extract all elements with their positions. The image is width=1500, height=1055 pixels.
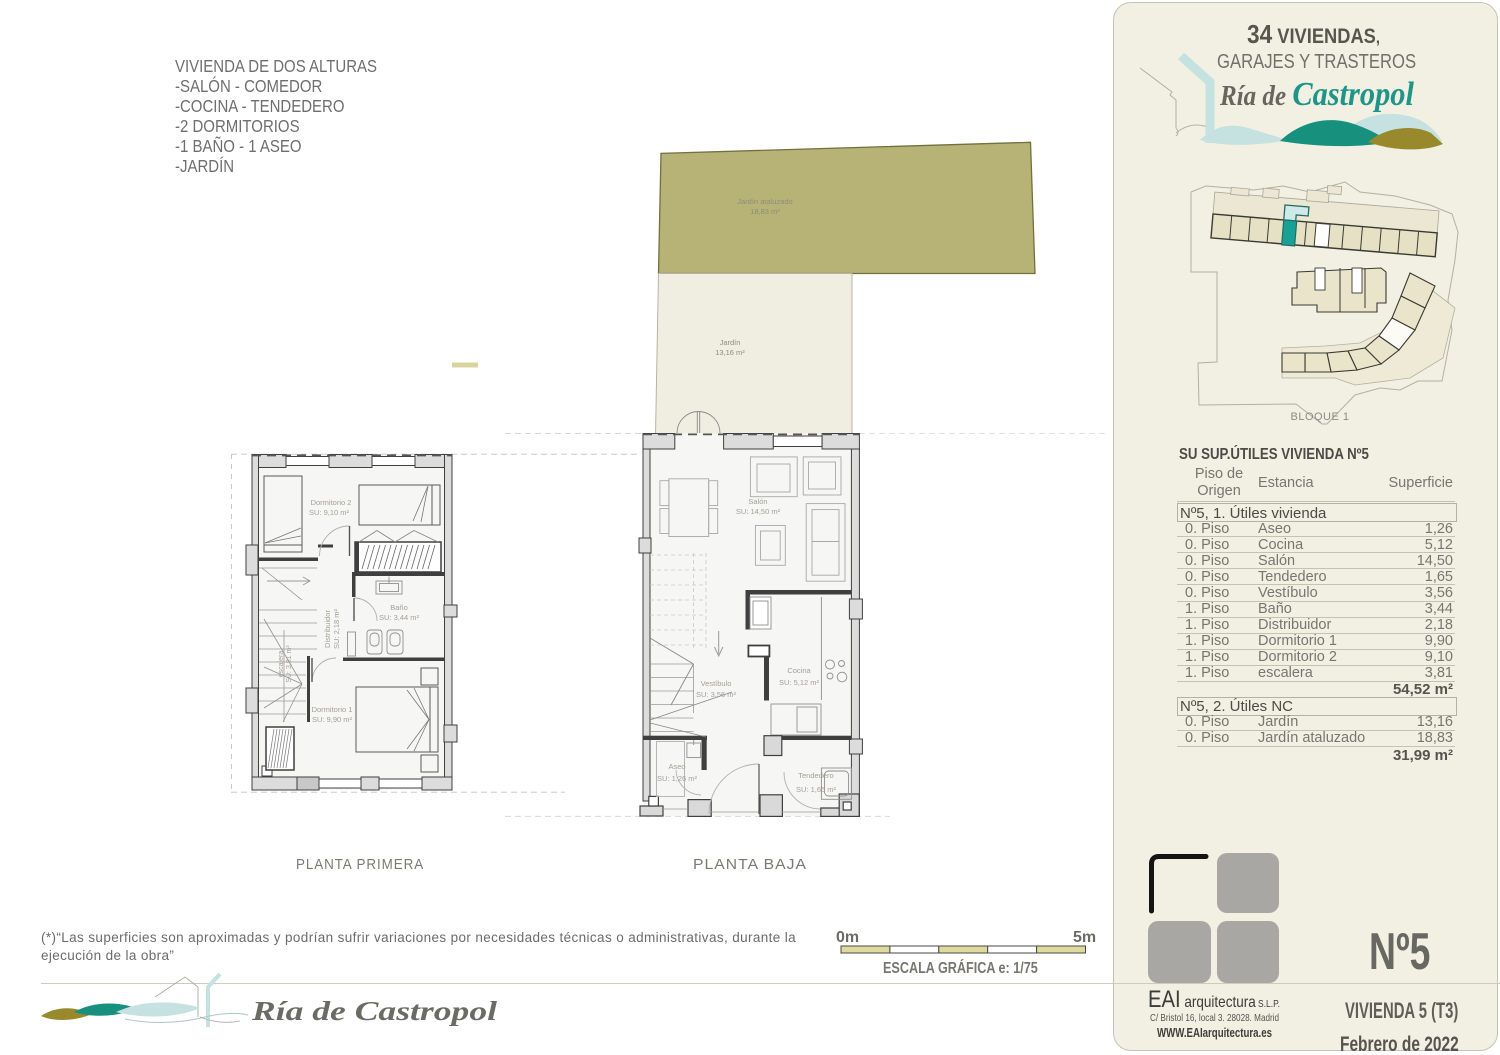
svg-text:SU: 3,44 m²: SU: 3,44 m² bbox=[379, 613, 420, 622]
svg-text:escalera: escalera bbox=[278, 651, 285, 678]
svg-text:Dormitorio 2: Dormitorio 2 bbox=[311, 498, 352, 507]
svg-text:Jardín ataluzado: Jardín ataluzado bbox=[737, 197, 792, 206]
svg-text:Dormitorio 1: Dormitorio 1 bbox=[312, 705, 353, 714]
svg-text:Baño: Baño bbox=[390, 603, 408, 612]
svg-text:Cocina: Cocina bbox=[787, 666, 811, 675]
svg-text:SU: 9,90 m²: SU: 9,90 m² bbox=[312, 715, 353, 724]
svg-text:Distribuidor: Distribuidor bbox=[323, 610, 332, 648]
svg-text:SU: 3,56 m²: SU: 3,56 m² bbox=[696, 690, 737, 699]
svg-text:SU: 1,26 m²: SU: 1,26 m² bbox=[657, 774, 698, 783]
svg-text:Aseo: Aseo bbox=[668, 762, 685, 771]
svg-text:Tendedero: Tendedero bbox=[798, 771, 833, 780]
svg-text:13,16 m²: 13,16 m² bbox=[715, 348, 745, 357]
svg-text:SU: 5,12 m²: SU: 5,12 m² bbox=[779, 678, 820, 687]
svg-text:SU: 14,50 m²: SU: 14,50 m² bbox=[736, 507, 781, 516]
svg-text:SU: 9,10 m²: SU: 9,10 m² bbox=[309, 508, 350, 517]
svg-text:Jardín: Jardín bbox=[720, 338, 741, 347]
svg-text:Vestíbulo: Vestíbulo bbox=[701, 679, 732, 688]
svg-text:SU: 3,81 m²: SU: 3,81 m² bbox=[286, 645, 293, 683]
svg-text:SU: 1,65 m²: SU: 1,65 m² bbox=[796, 785, 837, 794]
svg-text:Salón: Salón bbox=[748, 497, 767, 506]
svg-text:SU: 2,18 m²: SU: 2,18 m² bbox=[332, 608, 341, 649]
svg-text:18,83 m²: 18,83 m² bbox=[750, 207, 780, 216]
